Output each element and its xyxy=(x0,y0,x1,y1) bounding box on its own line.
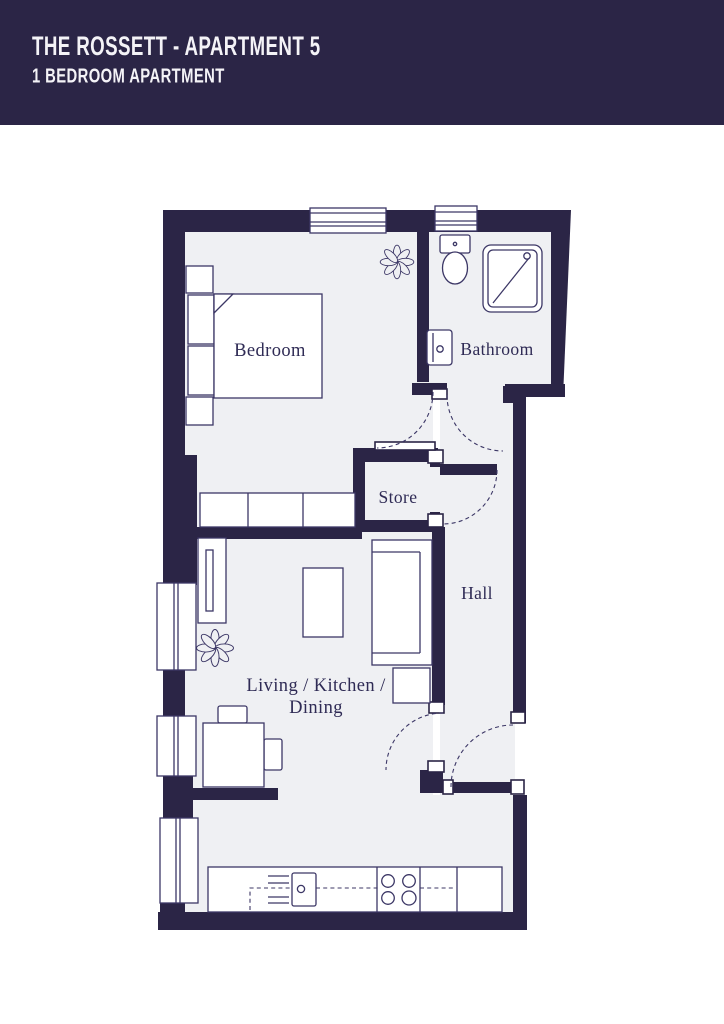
shower-icon xyxy=(483,245,542,312)
floorplan-page: THE ROSSETT - APARTMENT 5 1 BEDROOM APAR… xyxy=(0,0,724,1024)
bedroom-label: Bedroom xyxy=(234,341,306,361)
living-window-2 xyxy=(157,716,196,776)
living-label-line1: Living / Kitchen / xyxy=(246,676,386,696)
living-window-1 xyxy=(157,583,196,670)
kitchen-sink-icon xyxy=(292,873,316,906)
store-label: Store xyxy=(379,487,418,507)
side-table xyxy=(393,668,430,703)
living-label-line2: Dining xyxy=(289,698,343,718)
bathroom-window xyxy=(435,206,477,231)
wardrobe xyxy=(200,493,355,527)
tv-unit xyxy=(198,538,226,623)
kitchen-window xyxy=(160,818,198,903)
hall-label: Hall xyxy=(461,583,493,603)
bedroom-window xyxy=(310,208,386,233)
toilet-icon xyxy=(440,235,470,284)
sofa xyxy=(372,540,432,665)
plant-icon xyxy=(380,245,414,279)
basin-icon xyxy=(427,330,452,365)
coffee-table xyxy=(303,568,343,637)
bathroom-label: Bathroom xyxy=(460,339,533,359)
kitchen-counter xyxy=(208,867,502,912)
entrance-door-leaf xyxy=(448,782,516,793)
plant-icon xyxy=(197,630,234,667)
floor-plan: Bedroom Bathroom Store Hall Living / Kit… xyxy=(0,0,724,1024)
bedroom-door-leaf xyxy=(375,442,435,450)
store-door-leaf xyxy=(440,464,497,475)
